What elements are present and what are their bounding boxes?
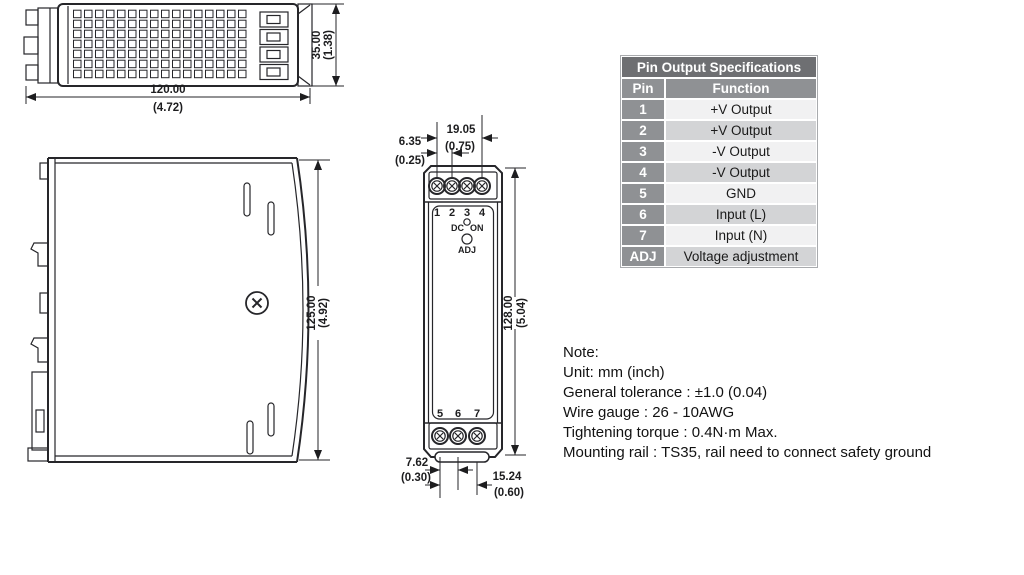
adj-potentiometer [462, 234, 472, 244]
table-row: 2 +V Output [622, 121, 816, 140]
pin-cell: 2 [622, 121, 664, 140]
pin-label-1: 1 [434, 207, 440, 219]
table-row: 3 -V Output [622, 142, 816, 161]
case-screw-icon [246, 292, 268, 314]
front-height-in-label: (5.04) [516, 298, 528, 328]
note-line: Tightening torque : 0.4N·m Max. [563, 423, 931, 443]
table-title: Pin Output Specifications [622, 57, 816, 77]
pin-spec-table: Pin Output Specifications Pin Function 1… [620, 55, 818, 268]
front-pitch-bottom-in-label: (0.30) [401, 472, 431, 484]
front-pitch-bottom-mm-label: 7.62 [406, 457, 428, 469]
front-span-bottom-in-label: (0.60) [494, 487, 524, 499]
function-cell: -V Output [666, 142, 816, 161]
table-row: 4 -V Output [622, 163, 816, 182]
note-line: Wire gauge : 26 - 10AWG [563, 403, 931, 423]
side-height-mm-label: 125.00 [306, 295, 318, 330]
terminal-blocks-top-view [260, 12, 288, 80]
dc-label: DC [451, 223, 464, 233]
table-row: 6 Input (L) [622, 205, 816, 224]
pin-label-2: 2 [449, 207, 455, 219]
side-view-drawing: 125.00 (4.92) [20, 150, 350, 475]
datasheet-page: 120.00 (4.72) 35.00 (1.38) [0, 0, 1024, 575]
function-cell: +V Output [666, 100, 816, 119]
table-row: 5 GND [622, 184, 816, 203]
pin-cell: 4 [622, 163, 664, 182]
front-height-mm-label: 128.00 [503, 295, 515, 330]
function-cell: Input (N) [666, 226, 816, 245]
function-cell: GND [666, 184, 816, 203]
pin-cell: 6 [622, 205, 664, 224]
top-view-drawing: 120.00 (4.72) 35.00 (1.38) [10, 0, 360, 125]
pin-cell: 7 [622, 226, 664, 245]
notes-heading: Note: [563, 343, 931, 363]
col-header-pin: Pin [622, 79, 664, 98]
note-line: Mounting rail : TS35, rail need to conne… [563, 443, 931, 463]
pin-label-5: 5 [437, 408, 443, 420]
pin-label-4: 4 [479, 207, 486, 219]
pin-cell: 5 [622, 184, 664, 203]
front-pitch-top-in-label: (0.25) [395, 155, 425, 167]
front-span-top-in-label: (0.75) [445, 141, 475, 153]
dim-bottom-pitch [425, 457, 492, 498]
din-clip-side-view [28, 163, 48, 461]
pin-label-3: 3 [464, 207, 470, 219]
front-pitch-top-mm-label: 6.35 [399, 136, 422, 148]
front-span-top-mm-label: 19.05 [447, 124, 476, 136]
side-height-in-label: (4.92) [318, 298, 330, 328]
pin-cell: 1 [622, 100, 664, 119]
notes-block: Note: Unit: mm (inch) General tolerance … [563, 343, 931, 463]
adj-label: ADJ [458, 245, 476, 255]
table-row: ADJ Voltage adjustment [622, 247, 816, 266]
front-span-bottom-mm-label: 15.24 [493, 471, 522, 483]
top-depth-mm-label: 35.00 [311, 31, 323, 60]
pin-label-7: 7 [474, 408, 480, 420]
on-label: ON [470, 223, 484, 233]
front-view-drawing: 19.05 (0.75) 6.35 (0.25) 128.00 (5.04) 7… [385, 105, 540, 520]
note-line: Unit: mm (inch) [563, 363, 931, 383]
bottom-terminal-screws [432, 428, 485, 444]
pin-cell: 3 [622, 142, 664, 161]
top-terminal-screws [429, 178, 490, 194]
top-width-in-label: (4.72) [153, 102, 183, 114]
pin-label-6: 6 [455, 408, 461, 420]
function-cell: -V Output [666, 163, 816, 182]
side-slots [244, 183, 274, 454]
vent-grid [72, 9, 248, 79]
side-view-body [28, 158, 330, 462]
function-cell: +V Output [666, 121, 816, 140]
note-line: General tolerance : ±1.0 (0.04) [563, 383, 931, 403]
function-cell: Input (L) [666, 205, 816, 224]
table-row: 1 +V Output [622, 100, 816, 119]
pin-cell: ADJ [622, 247, 664, 266]
din-rail-tab [435, 452, 489, 462]
top-width-mm-label: 120.00 [150, 84, 185, 96]
function-cell: Voltage adjustment [666, 247, 816, 266]
top-depth-in-label: (1.38) [323, 30, 335, 60]
col-header-function: Function [666, 79, 816, 98]
table-header-row: Pin Function [622, 79, 816, 98]
din-clip-top-view [24, 10, 38, 80]
table-row: 7 Input (N) [622, 226, 816, 245]
